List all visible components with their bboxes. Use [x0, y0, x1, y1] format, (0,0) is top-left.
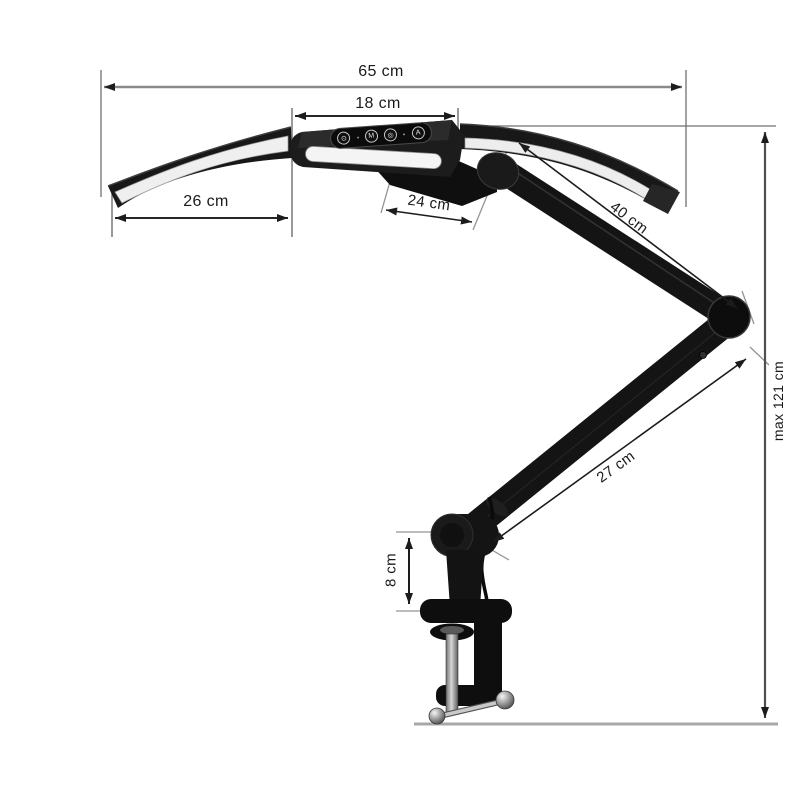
mode-button: M — [364, 129, 378, 143]
brightness-button: ◎ — [384, 128, 398, 142]
clamp-handle-ball-right — [496, 691, 514, 709]
dimension-label-total-width: 65 cm — [358, 63, 404, 81]
upper-arm — [505, 172, 725, 314]
lamp-dimension-diagram: ⊙ M ◎ A 65 cm 18 cm 26 cm 24 cm 40 cm 27… — [0, 0, 800, 800]
power-icon: ⊙ — [341, 134, 347, 142]
mode-icon: M — [368, 132, 374, 139]
tick-27-elbow — [750, 347, 769, 365]
auto-button: A — [411, 126, 425, 140]
mounting-post — [446, 550, 484, 607]
lower-arm — [471, 325, 723, 529]
dimension-label-clamp-height: 8 cm — [383, 553, 400, 587]
auto-icon: A — [416, 129, 421, 136]
brightness-icon: ◎ — [387, 131, 394, 139]
power-button: ⊙ — [337, 131, 351, 145]
dimension-label-max-height: max 121 cm — [770, 361, 786, 441]
indicator-dot — [403, 133, 405, 135]
indicator-dot — [357, 136, 359, 138]
dimension-label-center-width: 18 cm — [355, 95, 401, 113]
clamp-handle-ball-left — [429, 708, 445, 724]
base-joint-hub — [440, 523, 464, 547]
clamp-washer-top — [440, 626, 464, 634]
table-clamp — [420, 599, 514, 724]
dimension-label-left-wing: 26 cm — [183, 193, 229, 211]
lamp-arm-assembly — [431, 166, 750, 607]
upper-arm-highlight — [507, 166, 722, 308]
dimension-line-24 — [386, 210, 472, 222]
dimension-line-27 — [493, 359, 746, 542]
diagram-canvas — [0, 0, 800, 800]
lower-arm-highlight — [476, 332, 716, 526]
clamp-screw-rod — [446, 634, 458, 712]
arm-screw — [700, 352, 707, 359]
